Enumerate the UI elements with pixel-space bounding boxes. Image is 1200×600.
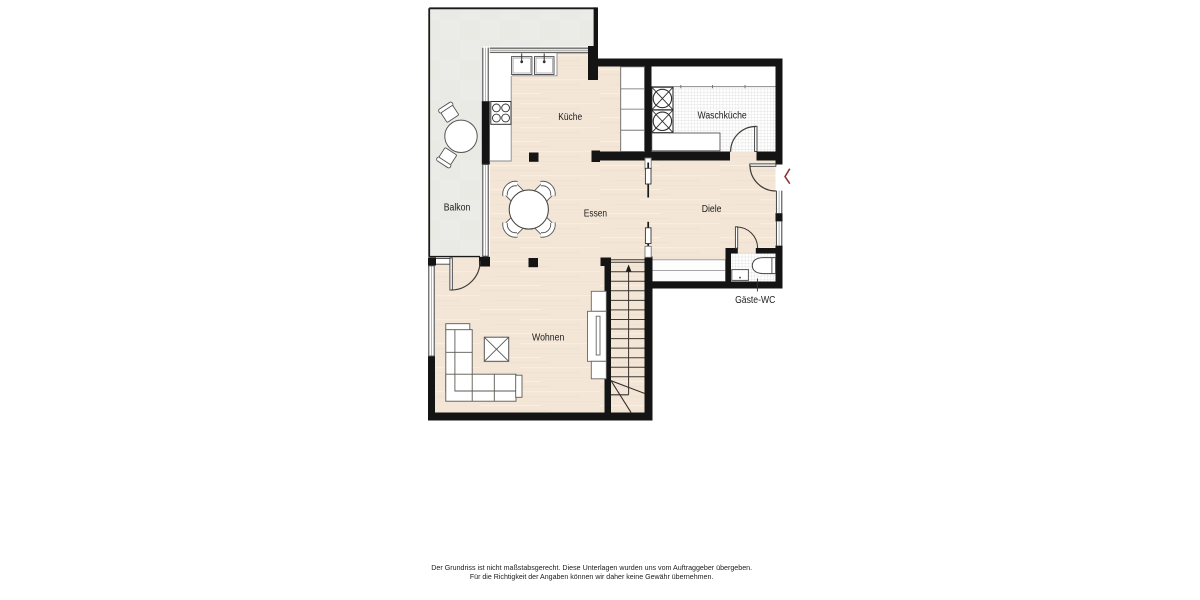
svg-text:Gäste-WC: Gäste-WC — [735, 295, 775, 306]
svg-text:Der Grundriss ist nicht maßsta: Der Grundriss ist nicht maßstabsgerecht.… — [431, 563, 752, 572]
svg-text:Essen: Essen — [584, 208, 607, 219]
svg-text:Wohnen: Wohnen — [532, 332, 564, 343]
svg-text:Waschküche: Waschküche — [698, 110, 747, 121]
svg-text:Küche: Küche — [558, 112, 582, 123]
svg-text:Für die Richtigkeit der Angabe: Für die Richtigkeit der Angaben können w… — [470, 572, 714, 581]
svg-text:Balkon: Balkon — [444, 203, 471, 214]
svg-text:Diele: Diele — [702, 204, 722, 215]
